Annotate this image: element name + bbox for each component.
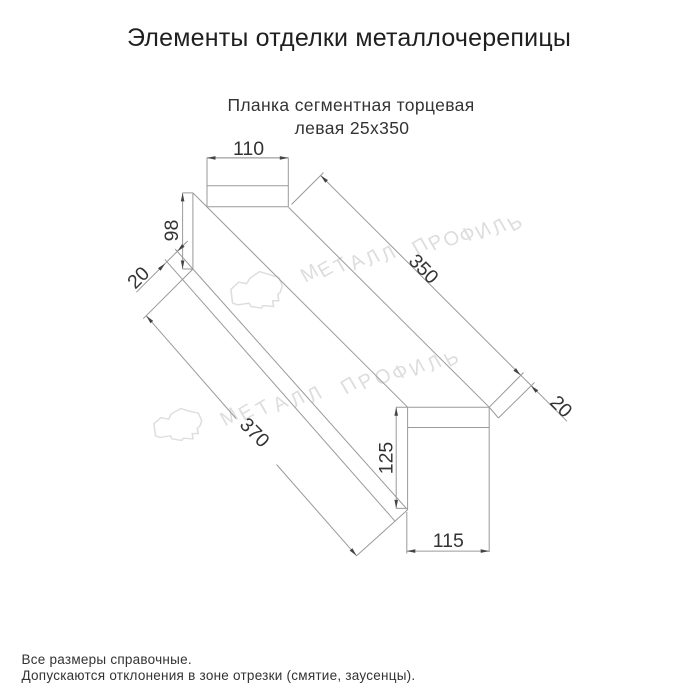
svg-text:левая 25x350: левая 25x350 [295, 118, 410, 138]
svg-text:Элементы отделки металлочерепи: Элементы отделки металлочерепицы [127, 24, 571, 52]
svg-text:115: 115 [433, 530, 464, 552]
svg-text:125: 125 [376, 442, 398, 475]
svg-text:110: 110 [233, 138, 264, 160]
svg-text:20: 20 [123, 262, 154, 293]
svg-text:370: 370 [235, 414, 274, 453]
svg-text:Планка сегментная торцевая: Планка сегментная торцевая [227, 95, 474, 115]
svg-text:Все размеры справочные.: Все размеры справочные. [22, 652, 192, 667]
svg-text:20: 20 [545, 391, 576, 422]
svg-text:350: 350 [404, 250, 443, 289]
svg-text:Допускаются отклонения в зоне: Допускаются отклонения в зоне отрезки (с… [22, 668, 416, 683]
svg-text:98: 98 [161, 220, 183, 242]
